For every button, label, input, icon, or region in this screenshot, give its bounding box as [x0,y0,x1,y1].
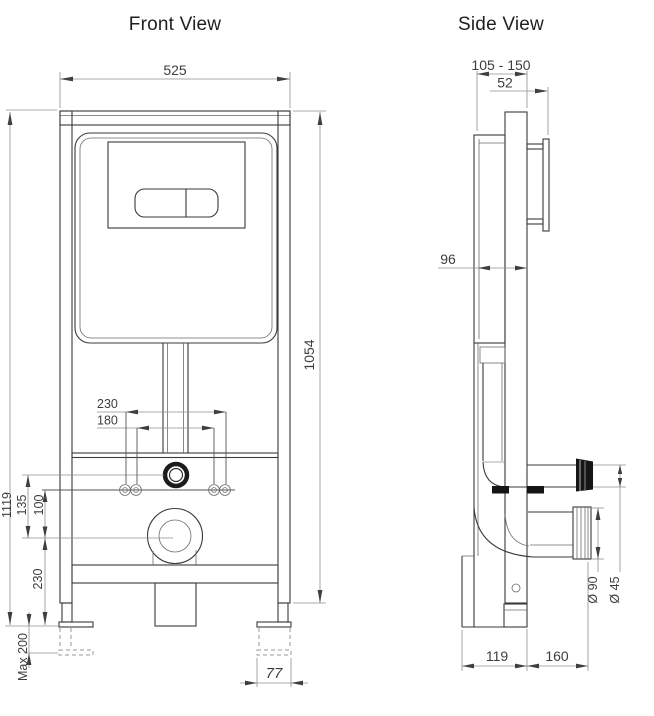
front-frame [59,111,291,655]
flush-plate [108,142,245,228]
dim-depth-range: 105 - 150 [471,57,530,73]
dim-base-rear: 119 [486,648,509,664]
side-view-title: Side View [458,14,544,35]
side-pipework [474,459,593,560]
dim-plate-offset: 52 [497,75,513,91]
dim-outlet-projection: 160 [545,648,569,664]
side-cistern [474,135,505,487]
dim-outlet-to-base: 230 [31,569,45,590]
front-view: Front View [0,14,326,687]
side-frame [462,112,527,627]
dim-front-width: 525 [163,62,187,78]
front-connections [42,464,235,565]
dim-bolts-to-outlet: 100 [32,495,46,516]
dim-front-frame-height: 1054 [301,339,317,370]
water-inlet [165,464,187,486]
dim-flush-diameter: Ø 45 [608,576,622,603]
dim-bolt-spacing-outer: 230 [97,397,118,411]
dim-bolt-spacing-inner: 180 [97,414,118,428]
dim-inlet-to-outlet: 135 [15,495,29,516]
technical-drawing-page: Front View [0,0,654,716]
waste-outlet [148,509,203,564]
flush-buttons [135,189,218,217]
side-flush-plate-bracket [527,139,549,231]
dim-feet-extension: Max 200 [16,633,30,681]
dim-cistern-depth: 96 [440,251,456,267]
side-view: Side View [438,14,626,671]
front-view-title: Front View [129,14,222,35]
dim-foot-plate-width: 77 [266,665,283,682]
dim-front-overall-height: 1119 [0,492,14,518]
installation-drawing: Front View [0,0,654,716]
